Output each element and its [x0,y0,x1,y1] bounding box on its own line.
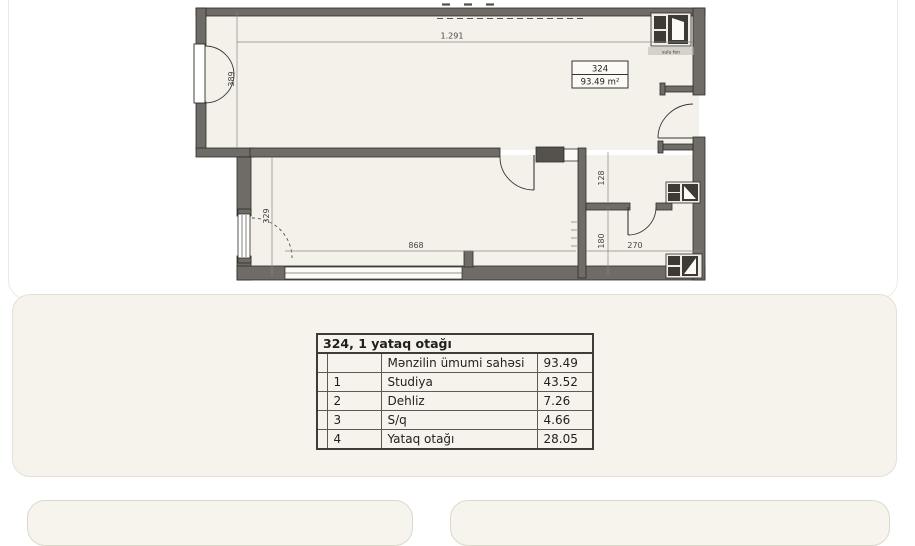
row-value: 93.49 [537,353,593,373]
bathroom-fixture-icon [666,254,702,278]
room-fill [202,14,699,268]
table-row: Mənzilin ümumi sahəsi 93.49 [317,353,593,373]
area-table: 324, 1 yataq otağı Mənzilin ümumi sahəsi… [316,333,594,450]
floor-plan: sulu fen 1.291 389 329 868 [185,0,715,292]
dim-bedroom-w: 868 [408,241,423,250]
row-name: Yataq otağı [381,430,537,450]
row-num: 1 [327,373,381,392]
unit-area: 93.49 m² [581,78,620,88]
row-value: 43.52 [537,373,593,392]
row-num: 3 [327,411,381,430]
dim-entry: 389 [227,71,236,86]
window-bottom [285,267,462,279]
table-row: 4 Yataq otağı 28.05 [317,430,593,450]
unit-number: 324 [592,65,608,75]
dim-bath-h: 180 [597,233,606,248]
table-row: 3 S/q 4.66 [317,411,593,430]
dim-hall: 128 [597,170,606,185]
table-title: 324, 1 yataq otağı [317,334,593,353]
row-name: Mənzilin ümumi sahəsi [381,353,537,373]
shaft-label: sulu fen [662,50,680,56]
utility-shaft-icon: sulu fen [648,13,694,56]
wall-box [564,149,578,161]
row-num [327,353,381,373]
row-value: 4.66 [537,411,593,430]
table-row: 1 Studiya 43.52 [317,373,593,392]
hall-fixture-icon [666,182,700,203]
collapsed-section-right[interactable] [450,500,890,546]
unit-label-box: 324 93.49 m² [572,61,628,88]
dim-top-width: 1.291 [441,32,464,41]
table-title-row: 324, 1 yataq otağı [317,334,593,353]
row-value: 28.05 [537,430,593,450]
row-num: 2 [327,392,381,411]
dim-bedroom-h: 329 [262,208,271,223]
row-name: S/q [381,411,537,430]
row-num: 4 [327,430,381,450]
shaft-block [536,147,564,162]
row-value: 7.26 [537,392,593,411]
table-row: 2 Dehliz 7.26 [317,392,593,411]
collapsed-section-left[interactable] [27,500,413,546]
row-name: Dehliz [381,392,537,411]
dim-bath-w: 270 [627,241,642,250]
row-name: Studiya [381,373,537,392]
